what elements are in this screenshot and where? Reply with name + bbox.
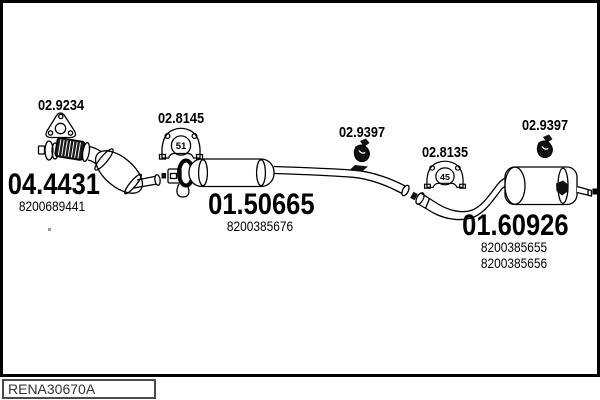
part-ref-centre: 8200385676 [208, 218, 312, 234]
callout-gasket: 02.9234 [27, 99, 95, 112]
sleeve-joint [410, 192, 438, 213]
part-centre-muffler: 01.50665 8200385676 [199, 192, 321, 234]
callout-front-hanger: 02.8145 [147, 112, 215, 125]
tailpipe [577, 187, 598, 197]
front-hanger-icon: 51 [160, 128, 203, 159]
part-ref-rear-1: 8200385655 [462, 239, 566, 255]
rear-clamp-size-label: 45 [440, 172, 450, 182]
front-hanger-size-label: 51 [176, 141, 187, 152]
part-ref-rear-2: 8200385656 [462, 255, 566, 271]
callout-mid-mount: 02.9397 [328, 126, 396, 139]
part-rear-muffler: 01.60926 8200385655 8200385656 [453, 213, 575, 271]
mid-mount-icon [354, 139, 369, 162]
part-ref-front: 8200689441 [8, 198, 96, 214]
drawing-code-label: RENA30670A [8, 381, 95, 397]
flex-pipe [55, 137, 91, 161]
part-code-rear: 01.60926 [462, 213, 566, 239]
callout-rear-mount: 02.9397 [511, 119, 579, 132]
rear-clamp-icon: 45 [425, 161, 466, 188]
part-code-front: 04.4431 [8, 172, 96, 198]
rear-muffler [505, 167, 577, 205]
gasket-icon [46, 113, 76, 138]
callout-rear-clamp: 02.8135 [411, 146, 479, 159]
print-speck [48, 228, 51, 231]
rear-mount-icon [537, 135, 552, 158]
part-front-pipe-catalyst: 04.4431 8200689441 [0, 172, 104, 214]
drawing-code-box: RENA30670A [2, 379, 156, 399]
pipe-bracket [349, 165, 368, 172]
part-code-centre: 01.50665 [208, 192, 312, 218]
catalog-page: 51 45 02.9234 02.8145 02.9397 02.8135 02… [0, 0, 600, 400]
